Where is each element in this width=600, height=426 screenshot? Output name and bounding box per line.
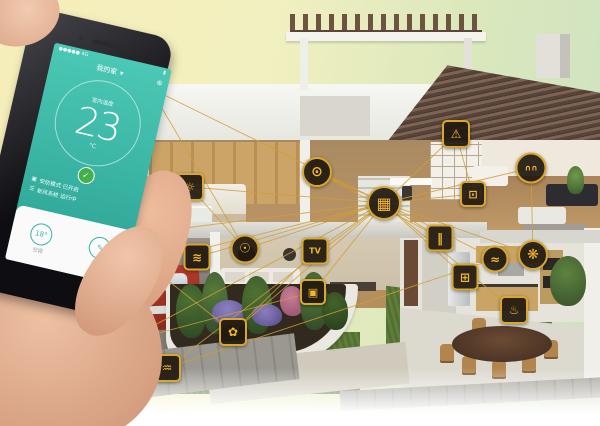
phone-front-camera xyxy=(78,35,84,41)
smart-hub-icon: ▦ xyxy=(367,186,401,220)
mode-icon: ▣ xyxy=(31,176,37,183)
washing-machine-glyph: ⊙ xyxy=(311,164,323,180)
smart-curtain-icon: ∩∩ xyxy=(516,153,547,184)
bedroom-socket-icon: ⊡ xyxy=(460,181,486,207)
smart-light-glyph: ☉ xyxy=(239,242,251,257)
phone-speaker xyxy=(92,39,126,51)
temperature-unit: °C xyxy=(88,141,97,149)
exhaust-fan-icon: ❋ xyxy=(518,240,548,270)
white-sofa xyxy=(518,207,566,224)
ac-quick-label: 空调 xyxy=(32,246,43,255)
indoor-plant xyxy=(567,166,584,194)
add-device-icon[interactable]: ⊕ xyxy=(156,79,164,88)
washing-machine-icon: ⊙ xyxy=(302,157,332,187)
smart-light-icon: ☉ xyxy=(231,235,260,264)
wall-art xyxy=(283,248,296,261)
list-icon: ☰ xyxy=(29,186,35,193)
pergola-rafters xyxy=(290,14,482,33)
air-conditioner-icon: ≋ xyxy=(184,244,211,271)
wall-switch-glyph: ▣ xyxy=(308,286,318,299)
garden-irrigation-glyph: ✿ xyxy=(228,325,238,339)
fascia-recess xyxy=(300,96,370,136)
bush xyxy=(550,256,586,306)
study-desk xyxy=(390,178,432,185)
air-conditioner-glyph: ≋ xyxy=(192,250,202,264)
kitchen-faucet-icon: ≈ xyxy=(482,246,509,273)
smart-tv-icon: TV xyxy=(302,238,329,265)
smart-stove-icon: ♨ xyxy=(500,296,528,324)
dishwasher-glyph: ⊞ xyxy=(460,270,470,284)
room-partition xyxy=(300,140,310,232)
kitchen-faucet-glyph: ≈ xyxy=(490,252,500,266)
window-sensor-icon: ‖ xyxy=(427,225,454,252)
sofa-cushions xyxy=(225,272,245,282)
chevron-down-icon[interactable]: ▾ xyxy=(119,69,124,78)
pergola-beam xyxy=(286,32,486,41)
smart-stove-glyph: ♨ xyxy=(509,303,520,317)
temperature-dial: 室内温度 23 °C xyxy=(46,72,149,175)
garden-irrigation-icon: ✿ xyxy=(219,318,247,346)
dishwasher-icon: ⊞ xyxy=(452,264,479,291)
bedroom-socket-glyph: ⊡ xyxy=(468,188,477,201)
app-title: 我的家 xyxy=(95,63,118,77)
smart-curtain-glyph: ∩∩ xyxy=(525,164,538,173)
study-chair xyxy=(402,186,412,201)
smart-home-scene: ▦◉ϟ▤♒✿▣≋☉TV☼⊙‖⚠⊡∩∩≈❋⊞♨ ●●●●● 4G ▮ 我的家 ▾ … xyxy=(0,0,600,426)
wall-switch-icon: ▣ xyxy=(300,279,326,305)
ac-setpoint[interactable]: 18° xyxy=(28,221,54,247)
temperature-value: 23 xyxy=(72,100,124,147)
garden-flowers-purple xyxy=(252,304,282,326)
dining-table xyxy=(452,326,552,362)
motion-sensor-glyph: ♒ xyxy=(162,361,173,375)
roof-alarm-icon: ⚠ xyxy=(442,120,470,148)
kitchen-door xyxy=(404,240,418,306)
pergola-post xyxy=(300,38,308,90)
smart-tv-glyph: TV xyxy=(309,247,321,256)
window-sensor-glyph: ‖ xyxy=(437,231,443,245)
ac-quick-button[interactable]: 18° 空调 xyxy=(26,221,54,256)
smart-hub-glyph: ▦ xyxy=(376,194,391,213)
exhaust-fan-glyph: ❋ xyxy=(527,247,539,263)
chimney xyxy=(536,34,570,78)
status-battery-icon: ▮ xyxy=(162,70,166,76)
roof-alarm-glyph: ⚠ xyxy=(451,127,462,141)
